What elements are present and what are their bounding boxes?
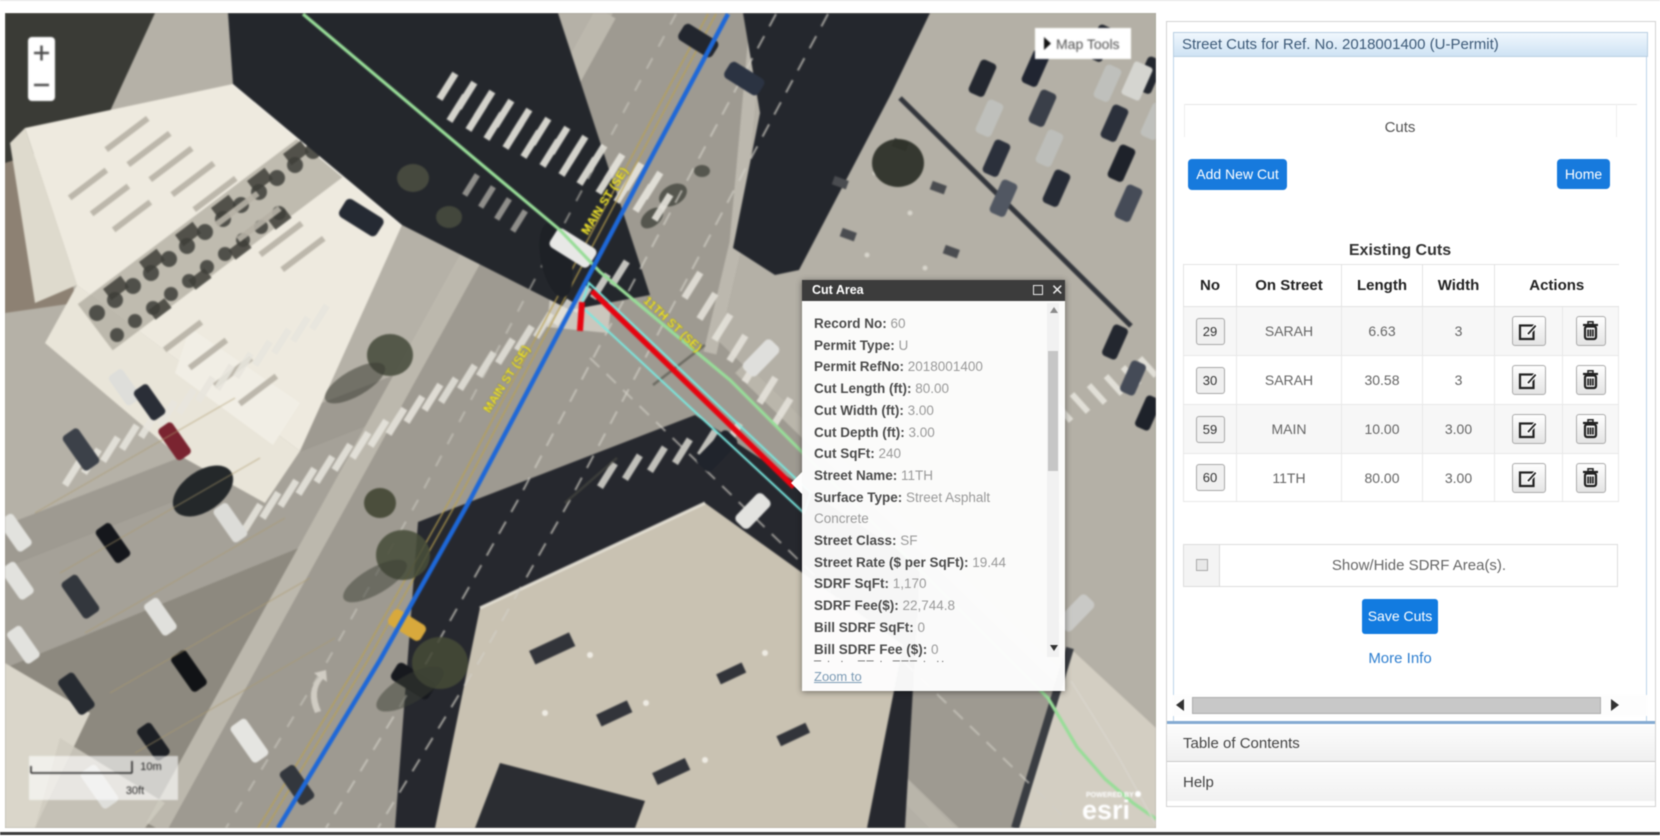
svg-text:esri: esri (1082, 795, 1130, 825)
svg-text:30ft: 30ft (126, 785, 144, 797)
svg-text:10m: 10m (140, 761, 161, 773)
svg-text:Map Tools: Map Tools (1056, 36, 1120, 52)
